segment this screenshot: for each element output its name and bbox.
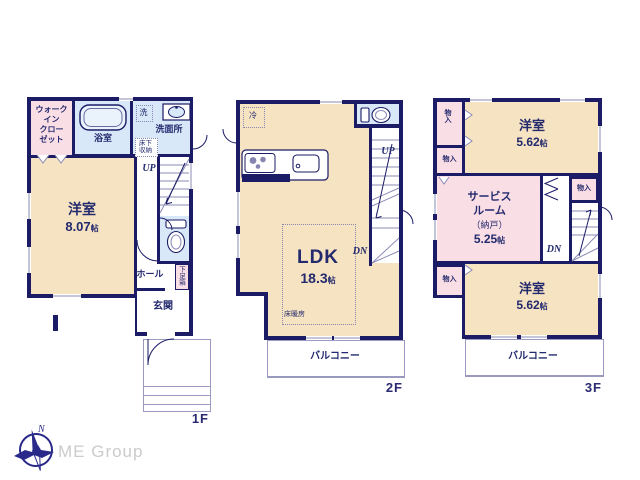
size-value: 5.25 [474, 232, 497, 246]
window [598, 274, 602, 298]
floor-2-notch [236, 296, 264, 340]
staircase-1f [160, 157, 189, 214]
compass-north-label: N [37, 424, 46, 435]
washroom-label: 洗面所 [149, 124, 189, 135]
floor-2-label: 2F [369, 380, 403, 395]
washer-label: 洗 [136, 108, 151, 118]
floorplan-canvas: ウォーク イン クロー ゼット 浴室 洗 洗面所 床下 収納 UP 洋室 8.0… [0, 0, 640, 480]
storage-label: 物入 [437, 276, 462, 285]
hall-entrance-wall [135, 288, 165, 291]
service-room-size: 5.25帖 [447, 232, 532, 247]
bedroom-807-size: 8.07帖 [47, 219, 117, 235]
floor-1-label: 1F [175, 411, 209, 426]
porch-step-line [144, 395, 210, 396]
bedroom-top-name: 洋室 [497, 118, 567, 134]
window [433, 194, 437, 214]
service-room [437, 176, 540, 261]
service-room-sub: （納戸） [447, 220, 532, 231]
door-arc [193, 135, 207, 149]
window [27, 247, 31, 273]
window [119, 97, 133, 101]
bedroom-807-name: 洋室 [47, 201, 117, 219]
size-value: 8.07 [65, 219, 90, 234]
window [236, 234, 240, 258]
size-unit: 帖 [540, 302, 548, 311]
notch-wall-side [264, 292, 268, 340]
shoe-box-label: 下足箱 [177, 266, 184, 286]
window [334, 336, 360, 340]
porch-step-line [144, 386, 210, 387]
floor-3-label: 3F [568, 380, 602, 395]
bathroom-room [75, 101, 130, 154]
walk-in-closet-label: ウォーク イン クロー ゼット [31, 105, 72, 145]
window [521, 335, 547, 339]
ldk-name: LDK [288, 246, 348, 270]
size-unit: 帖 [328, 276, 336, 285]
ldk-size: 18.3帖 [288, 270, 348, 288]
floor-1-plan: ウォーク イン クロー ゼット 浴室 洗 洗面所 床下 収納 UP 洋室 8.0… [27, 97, 210, 432]
site-marker [53, 315, 58, 331]
storage-label: 物入 [572, 185, 596, 194]
balcony-2f-label: バルコニー [299, 351, 371, 364]
bathroom-label: 浴室 [83, 133, 123, 144]
window [320, 100, 342, 104]
window [306, 336, 332, 340]
porch-step-line [144, 404, 210, 405]
window [236, 192, 240, 226]
hall-label: ホール [133, 269, 167, 280]
storage-label: 物入 [444, 109, 451, 123]
dn-label-3f: DN [541, 244, 567, 255]
brand-logo-text: ME Group [58, 442, 143, 462]
service-room-name: サービス ルーム [447, 191, 532, 219]
door-arc [223, 129, 236, 143]
notch-wall-top [236, 292, 267, 296]
dn-label-2f: DN [348, 246, 372, 257]
bedroom-bottom-name: 洋室 [497, 281, 567, 297]
up-label-1f: UP [137, 163, 161, 174]
entrance-label: 玄関 [143, 301, 183, 314]
staircase-3f [572, 203, 598, 261]
balcony-3f-label: バルコニー [497, 351, 569, 364]
size-value: 18.3 [300, 270, 327, 286]
up-label-2f: UP [376, 146, 400, 157]
bedroom-bottom-size: 5.62帖 [497, 298, 567, 313]
toilet-1f-room [160, 216, 189, 261]
window [189, 163, 193, 189]
window [53, 294, 81, 298]
fridge-label: 冷 [243, 111, 263, 121]
compass-icon: N [12, 422, 60, 478]
window [470, 98, 492, 102]
window [433, 220, 437, 240]
bedroom-top-size: 5.62帖 [497, 135, 567, 150]
storage-label: 物入 [437, 156, 462, 165]
window [491, 335, 517, 339]
size-unit: 帖 [91, 224, 99, 233]
window [598, 126, 602, 152]
window [27, 193, 31, 219]
window [560, 98, 585, 102]
size-value: 5.62 [516, 135, 539, 149]
floor-heating-label: 床暖房 [284, 311, 314, 320]
floor-2-plan: 冷 UP DN LDK 18.3帖 床暖房 バルコニー 2F [236, 100, 403, 395]
floor-storage-label: 床下 収納 [135, 140, 156, 155]
size-value: 5.62 [516, 298, 539, 312]
size-unit: 帖 [540, 139, 548, 148]
floor-3-plan: 物入 物入 洋室 5.62帖 サービス ルーム （納戸） 5.25帖 物入 DN… [433, 98, 602, 395]
size-unit: 帖 [497, 236, 505, 245]
entrance-porch [143, 339, 211, 412]
